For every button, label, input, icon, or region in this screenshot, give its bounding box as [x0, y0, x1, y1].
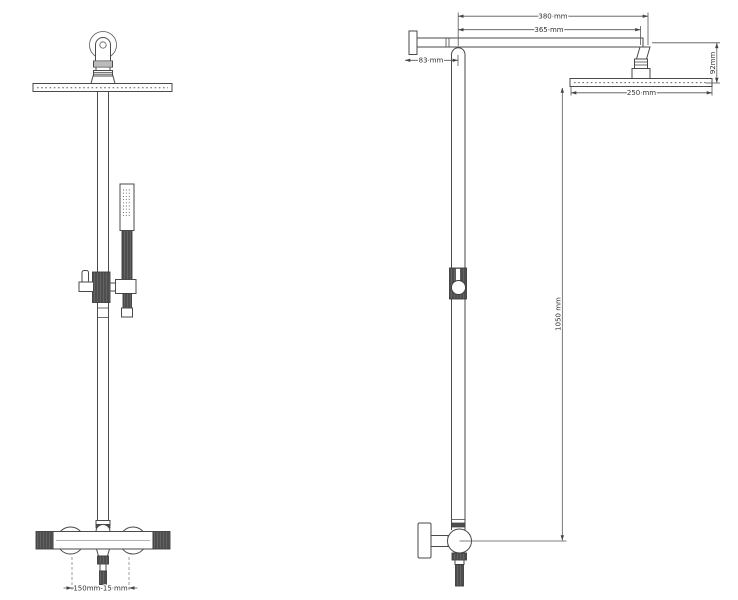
valve-wall-plate: [418, 523, 431, 558]
side-shower-arm: [417, 38, 643, 47]
hand-shower-holder: [116, 280, 137, 294]
front-overhead-shower-plate: [33, 84, 172, 92]
front-view: 150mm-15 mm: [33, 32, 172, 593]
drawing-canvas: 150mm-15 mm: [0, 0, 738, 600]
side-slider-bracket: [450, 268, 467, 299]
front-mixer-valve: [36, 521, 170, 585]
hand-shower-handle: [122, 231, 132, 280]
hand-shower-head: [120, 184, 134, 231]
dim-label-arm-to-head: 365 mm: [534, 26, 563, 34]
front-slider-bracket: [93, 272, 111, 303]
valve-knob-left: [36, 532, 53, 550]
front-gooseneck: [90, 32, 117, 84]
valve-knob-right: [153, 532, 170, 550]
dim-label-wall-offset: 83 mm: [419, 57, 444, 65]
front-hand-shower: [110, 184, 136, 317]
side-wall-flange: [409, 31, 417, 55]
side-overhead-shower-plate: [570, 79, 712, 87]
technical-drawing: 150mm-15 mm: [0, 0, 738, 600]
dim-label-outlet-spacing: 150mm-15 mm: [73, 584, 127, 592]
side-arm-elbow: [632, 47, 650, 79]
side-dimension-head-drop: 92mm: [652, 43, 720, 83]
side-mixer-valve: [418, 523, 472, 586]
hose-cap: [122, 308, 133, 317]
hose-nut: [123, 294, 132, 309]
side-dimension-riser-height: 1050 mm: [460, 88, 567, 542]
valve-outlet-thread: [100, 571, 107, 585]
dim-label-head-diameter: 250 mm: [627, 89, 656, 97]
dim-label-arm-overall: 380 mm: [538, 13, 567, 21]
side-dimension-head-diameter: 250 mm: [571, 87, 712, 97]
side-view: 380 mm 365 mm 83 mm 92mm: [405, 13, 720, 587]
front-riser-pipe: [98, 92, 109, 523]
side-dimension-wall-offset: 83 mm: [405, 55, 458, 66]
valve-outlet-thread-side: [456, 565, 464, 587]
dim-label-head-drop: 92mm: [709, 51, 717, 74]
dim-label-riser-height: 1050 mm: [554, 297, 562, 331]
front-diverter-lever: [79, 271, 94, 292]
